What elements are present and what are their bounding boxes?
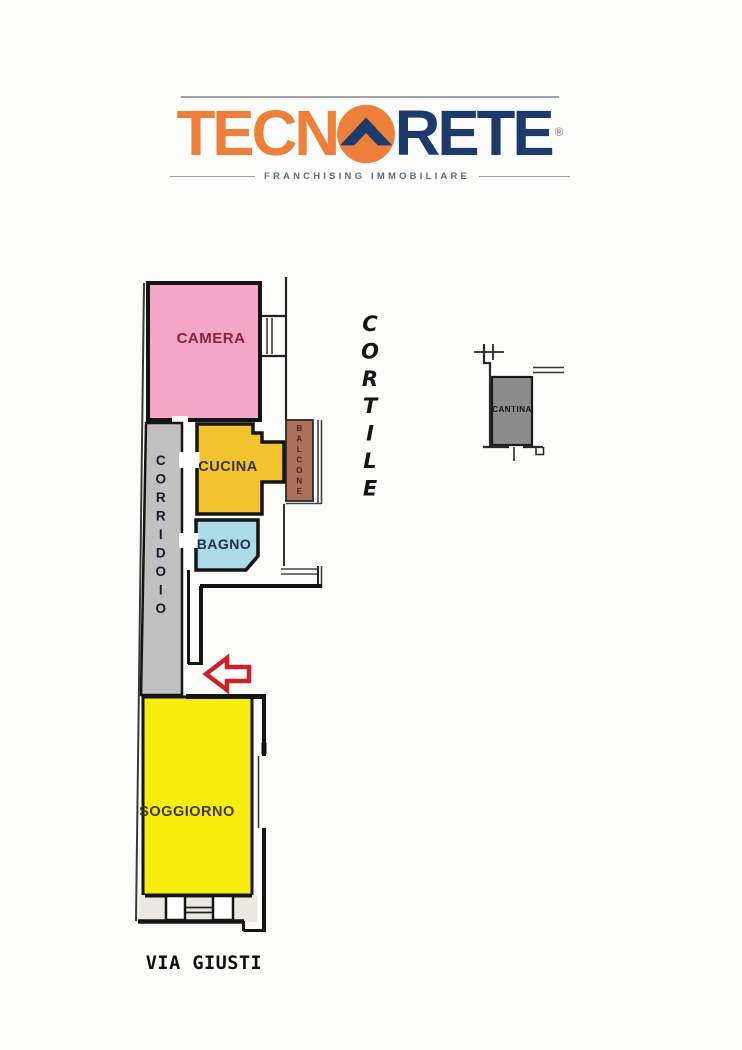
room-corridoio: CORRIDOIO [141,423,185,695]
cortile-label: CORTILE [361,312,379,500]
soggiorno-label: SOGGIORNO [139,804,235,820]
entrance-arrow-icon [206,658,249,690]
room-bagno: BAGNO [194,520,259,570]
room-camera: CAMERA [148,283,260,425]
bagno-label: BAGNO [197,536,252,552]
room-cantina: CANTINA [474,344,564,461]
corridor-door-opening-2 [179,533,185,548]
cucina-label: CUCINA [198,459,257,475]
camera-window [262,277,286,420]
room-cucina: CUCINA [195,424,285,514]
balcone: BALCONE [286,420,322,504]
street-label: VIA GIUSTI [146,953,262,974]
floorplan-page: TECN RETE ® FRANCHISING IMMOBILIARE CAME… [0,0,742,1050]
cantina-label: CANTINA [492,405,532,414]
corridor-door-opening-1 [179,452,185,468]
floorplan-drawing: CAMERA CORRIDOIO CUCINA [0,0,742,1050]
street-bay-window [138,895,266,931]
camera-label: CAMERA [177,330,246,347]
balcone-label: BALCONE [296,424,303,496]
